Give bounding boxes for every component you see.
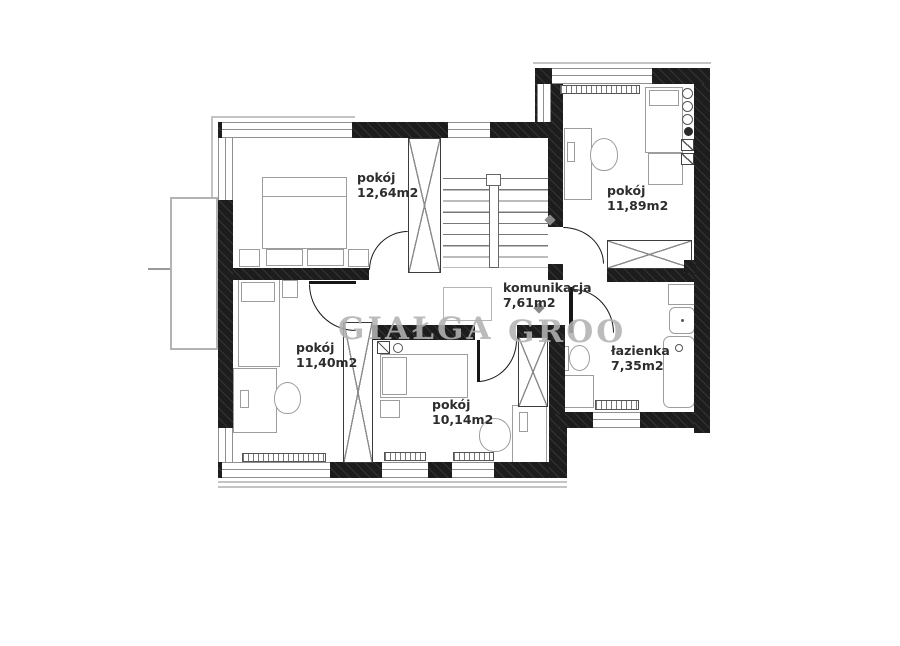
wardrobe — [607, 240, 692, 269]
desk — [564, 128, 592, 200]
duct-shaft — [408, 138, 441, 273]
bathtub-drain — [675, 344, 683, 352]
radiator — [242, 453, 326, 462]
room-label-pokoj-1014: pokój 10,14m2 — [432, 397, 493, 427]
room-area-value: 7,61m2 — [503, 295, 592, 310]
desk-chair — [590, 138, 618, 171]
window — [218, 428, 233, 462]
wall-segment — [607, 268, 694, 282]
bed-chest — [648, 153, 683, 185]
wall-segment — [490, 122, 548, 138]
bed-pillow — [266, 249, 303, 266]
bed-pillow — [307, 249, 344, 266]
desk-monitor — [567, 142, 575, 162]
dimension-tick — [148, 268, 170, 270]
room-area-value: 10,14m2 — [432, 412, 493, 427]
room-label-pokoj-1140: pokój 11,40m2 — [296, 340, 357, 370]
faucet-dot — [681, 319, 684, 322]
room-name: pokój — [432, 397, 493, 412]
window — [452, 462, 494, 478]
room-area-value: 12,64m2 — [357, 185, 418, 200]
radiator — [560, 85, 640, 94]
wall-segment — [330, 462, 382, 478]
room-area-value: 7,35m2 — [611, 358, 670, 373]
footing-line — [218, 481, 567, 483]
room-name: pokój — [357, 170, 418, 185]
roof-outline — [533, 62, 711, 64]
stair-newel-post — [486, 174, 501, 186]
bath-shelf — [668, 284, 695, 305]
window — [537, 84, 551, 122]
room-name: pokój — [607, 183, 668, 198]
room-name: pokój — [296, 340, 357, 355]
bed-pillow — [241, 282, 275, 302]
nightstand — [380, 400, 400, 418]
wall-segment — [352, 122, 448, 138]
wall-segment — [694, 68, 710, 433]
wall-segment — [548, 264, 563, 280]
floor-plan: GIAŁGA GROO pokój 12,64m2 pokój 11,89m2 … — [0, 0, 900, 646]
window — [382, 462, 428, 478]
room-label-pokoj-1189: pokój 11,89m2 — [607, 183, 668, 213]
shelf-hatched-box — [681, 153, 694, 165]
roof-outline — [211, 116, 355, 118]
radiator — [595, 400, 639, 410]
desk — [512, 405, 547, 463]
desk-monitor — [519, 412, 528, 432]
nightstand — [282, 280, 298, 298]
window — [222, 122, 352, 138]
wall-pier — [684, 260, 696, 273]
wall-segment — [428, 462, 452, 478]
window — [552, 68, 652, 84]
room-name: komunikacja — [503, 280, 592, 295]
desk-chair — [274, 382, 301, 414]
wall-segment — [233, 268, 369, 280]
nightstand — [348, 249, 369, 267]
room-label-komunikacja: komunikacja 7,61m2 — [503, 280, 592, 310]
footing-line — [218, 486, 567, 488]
bed-pillow — [649, 90, 679, 106]
window — [448, 122, 490, 138]
room-name: łazienka — [611, 343, 670, 358]
bed-pillow — [382, 357, 407, 395]
wall-segment — [218, 200, 233, 428]
room-area-value: 11,89m2 — [607, 198, 668, 213]
radiator — [384, 452, 426, 461]
watermark-fragment: GIAŁGA — [338, 314, 494, 344]
roof-outline — [211, 116, 213, 202]
shelf-circle — [682, 101, 693, 112]
window — [218, 138, 233, 200]
stair-railing — [489, 177, 499, 268]
shelf-circle — [682, 88, 693, 99]
desk-monitor — [240, 390, 249, 408]
nightstand — [239, 249, 260, 267]
watermark-fragment: GROO — [508, 317, 626, 347]
double-bed — [262, 177, 347, 249]
room-area-value: 11,40m2 — [296, 355, 357, 370]
shelf-circle — [682, 114, 693, 125]
window — [222, 462, 330, 478]
room-label-pokoj-1264: pokój 12,64m2 — [357, 170, 418, 200]
room-label-lazienka: łazienka 7,35m2 — [611, 343, 670, 373]
window — [593, 412, 640, 428]
shelf-hatched-box — [681, 139, 694, 151]
bed-blanket-line — [263, 196, 346, 197]
shelf-circle-dark — [684, 127, 693, 136]
balcony — [170, 197, 218, 350]
radiator — [453, 452, 494, 461]
